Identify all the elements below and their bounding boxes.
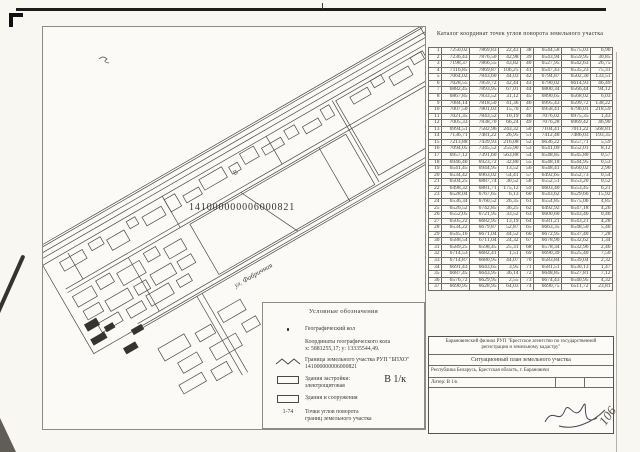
scan-top-bar (16, 8, 606, 11)
building-rect-icon (277, 395, 299, 403)
map-line (202, 293, 248, 372)
map-building (176, 274, 192, 288)
map-building (195, 324, 216, 342)
map-building (262, 137, 285, 155)
map-line (43, 32, 425, 257)
legend-item-label: Граница земельного участка РУП "БПХО" 14… (305, 357, 420, 370)
building-letter-label: В (232, 169, 240, 178)
scan-artifact (0, 254, 25, 321)
map-building (320, 105, 335, 120)
map-line (66, 71, 425, 289)
map-building (83, 302, 104, 320)
legend-coords-line2: х: 5881255,17; у: 13335544,49. (305, 346, 420, 353)
map-building (158, 334, 191, 361)
map-building (126, 217, 139, 229)
scan-artifact (99, 57, 109, 63)
map-building (179, 372, 207, 394)
scan-shadow (0, 418, 16, 452)
map-building (239, 146, 259, 164)
map-building (218, 299, 247, 322)
coordinate-table: 17250,027869,8322,43386544,586575,036,90… (428, 47, 613, 291)
map-dark-structure (123, 341, 139, 354)
map-line (141, 121, 425, 329)
map-line (197, 296, 243, 375)
legend-points-line2: границ земельного участка (305, 416, 420, 423)
legend-item: Географический кол (271, 326, 420, 333)
map-building (336, 51, 425, 175)
document-title: Ситуационный план земельного участка (429, 355, 613, 366)
legend-item: Здания застройки: электрощитовая В 1/к (271, 376, 420, 389)
organization-name: Барановичский филиал РУП "Брестское аген… (429, 337, 613, 355)
dot-icon (287, 328, 290, 331)
legend-item: Граница земельного участка РУП "БПХО" 14… (271, 357, 420, 370)
legend-item: Координаты географического кола х: 58812… (271, 339, 420, 352)
legend-item-label: Географический кол (305, 326, 420, 333)
point-range-label: 1-74 (271, 409, 305, 415)
coordinate-catalog-title: Каталог координат точек углов поворота з… (428, 30, 612, 38)
map-building (88, 237, 104, 251)
legend-item-label: Координаты географического кола х: 58812… (305, 339, 420, 352)
page-edge-line (616, 52, 617, 452)
map-building (183, 187, 203, 203)
coord-cell: 64,03 (499, 284, 521, 291)
map-building (284, 125, 299, 140)
map-building (142, 206, 166, 226)
legend-item: Здания и сооружения (271, 395, 420, 403)
map-line (68, 253, 83, 279)
legend-box: Условные обозначения Географический кол … (262, 302, 425, 429)
legend-title: Условные обозначения (263, 308, 424, 315)
map-building (177, 254, 196, 271)
location-line: Республика Беларусь, Брестская область, … (429, 366, 613, 378)
map-line (128, 257, 159, 311)
map-building (134, 280, 151, 296)
liter-row: Литер: В 1/к (429, 378, 613, 388)
legend-item-label: Здания и сооружения (305, 395, 420, 402)
coord-cell: 6690,75 (534, 284, 562, 291)
map-building (96, 273, 115, 290)
liter-label: Литер: В 1/к (431, 378, 555, 387)
map-building (126, 301, 147, 319)
map-line (43, 36, 425, 261)
map-building (302, 118, 322, 134)
table-row: 376690,956628,9564,03746690,756511,7223,… (429, 284, 613, 291)
map-line (68, 74, 425, 292)
title-block: Барановичский филиал РУП "Брестское аген… (428, 336, 614, 434)
scanned-sheet: ул. Фабричная В 141000000006000821 Катал… (0, 0, 640, 452)
empty-cell (555, 378, 584, 387)
empty-cell (584, 378, 613, 387)
liter-sample-label: В 1/к (384, 374, 406, 385)
legend-boundary-line2: 141000000006000821 (305, 364, 420, 371)
map-line (332, 101, 379, 182)
coord-cell: 23,81 (591, 284, 613, 291)
coord-cell: 6628,95 (470, 284, 499, 291)
building-rect-icon (277, 376, 299, 384)
map-building (164, 194, 181, 212)
map-building (199, 167, 228, 190)
map-building (370, 75, 384, 88)
map-building (350, 87, 371, 104)
scan-artifact (322, 3, 323, 9)
map-building (242, 316, 261, 333)
coord-cell: 6511,72 (562, 284, 591, 291)
legend-item-label: Точки углов поворота границ земельного у… (305, 409, 420, 422)
map-dark-structure (90, 332, 107, 346)
map-building (164, 239, 187, 259)
coord-cell: 37 (429, 284, 442, 291)
map-building (143, 246, 160, 262)
legend-boundary-line1: Граница земельного участка РУП "БПХО" (305, 357, 420, 364)
coordinate-catalog: Каталог координат точек углов поворота з… (428, 30, 612, 291)
cadastral-number-label: 141000000006000821 (189, 202, 295, 213)
map-line (319, 147, 350, 201)
map-line (43, 41, 425, 266)
map-building (178, 352, 203, 373)
map-building (389, 66, 413, 86)
map-building (410, 52, 424, 65)
coord-cell: 74 (521, 284, 534, 291)
zigzag-line-icon (275, 357, 301, 366)
map-building (150, 263, 177, 285)
corner-crop-mark (9, 13, 13, 27)
coord-cell: 6690,95 (442, 284, 470, 291)
legend-item: 1-74 Точки углов поворота границ земельн… (271, 409, 420, 422)
map-building (72, 286, 97, 307)
title-block-grid (429, 388, 613, 432)
map-building (211, 361, 233, 380)
map-building (60, 250, 88, 272)
map-building (107, 230, 130, 250)
map-building (146, 283, 175, 306)
map-dark-structure (84, 318, 100, 332)
map-line (43, 27, 423, 252)
